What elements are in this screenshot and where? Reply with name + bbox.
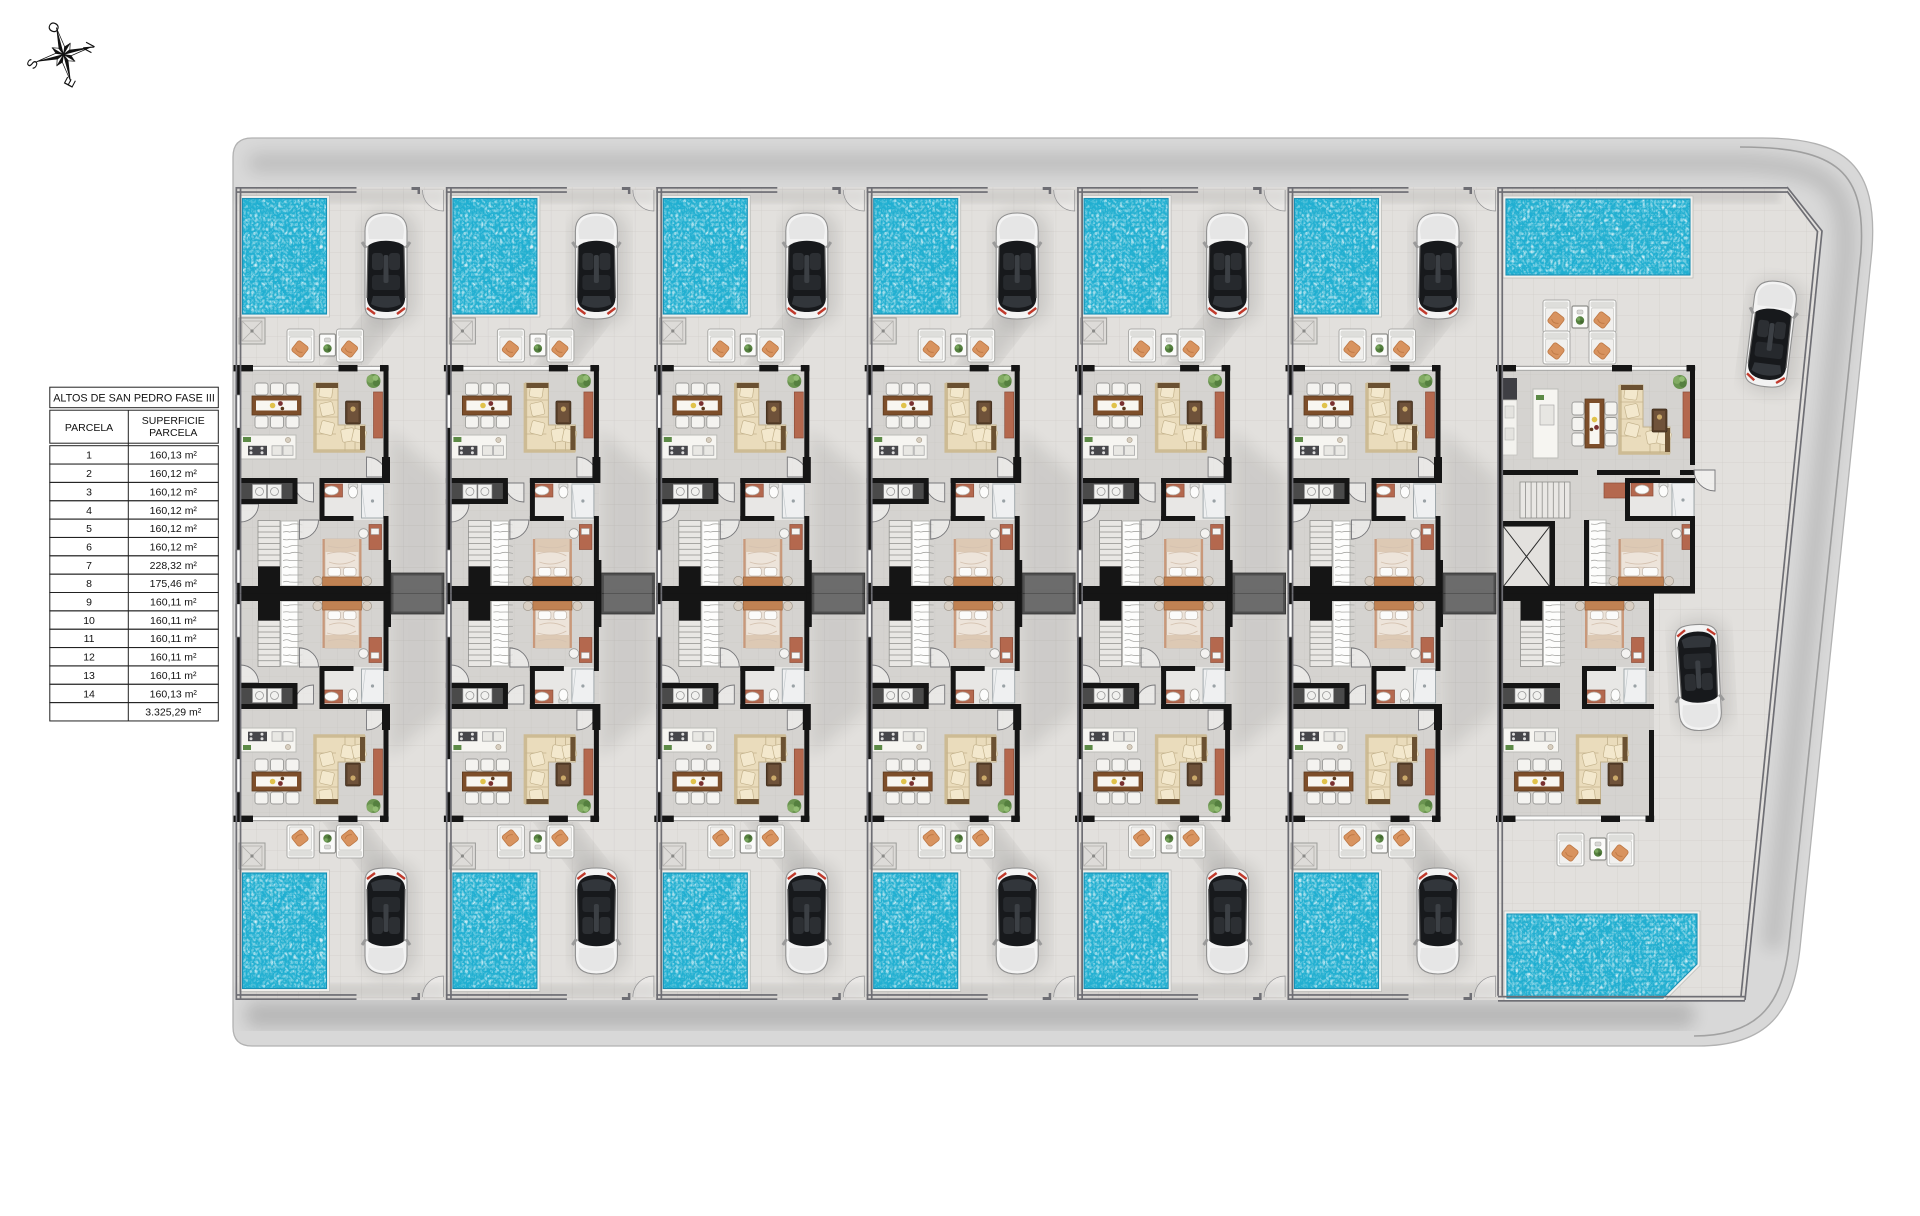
svg-text:ALTOS DE SAN PEDRO FASE III: ALTOS DE SAN PEDRO FASE III	[53, 393, 215, 405]
svg-text:160,11 m²: 160,11 m²	[150, 597, 197, 609]
svg-text:11: 11	[84, 633, 95, 645]
svg-text:3.325,29 m²: 3.325,29 m²	[145, 707, 202, 719]
svg-text:PARCELA: PARCELA	[149, 427, 197, 439]
svg-text:5: 5	[86, 523, 92, 535]
svg-text:160,13 m²: 160,13 m²	[150, 688, 198, 700]
svg-text:175,46 m²: 175,46 m²	[150, 578, 198, 590]
svg-text:2: 2	[86, 468, 92, 480]
svg-text:13: 13	[83, 670, 95, 682]
svg-text:160,11 m²: 160,11 m²	[150, 633, 197, 645]
svg-text:228,32 m²: 228,32 m²	[150, 560, 198, 572]
svg-text:160,11 m²: 160,11 m²	[150, 670, 197, 682]
svg-text:4: 4	[86, 505, 92, 517]
svg-text:160,12 m²: 160,12 m²	[150, 541, 198, 553]
svg-text:160,12 m²: 160,12 m²	[150, 486, 198, 498]
svg-text:160,12 m²: 160,12 m²	[150, 468, 198, 480]
svg-text:160,13 m²: 160,13 m²	[150, 450, 198, 462]
svg-text:160,11 m²: 160,11 m²	[150, 615, 197, 627]
svg-text:8: 8	[86, 578, 92, 590]
svg-text:14: 14	[83, 688, 95, 700]
svg-text:160,12 m²: 160,12 m²	[150, 505, 198, 517]
svg-text:160,12 m²: 160,12 m²	[150, 523, 198, 535]
svg-text:6: 6	[86, 541, 92, 553]
svg-text:7: 7	[86, 560, 92, 572]
svg-text:9: 9	[86, 597, 92, 609]
svg-text:1: 1	[86, 450, 92, 462]
svg-text:10: 10	[83, 615, 95, 627]
svg-text:PARCELA: PARCELA	[65, 422, 113, 434]
svg-text:3: 3	[86, 486, 92, 498]
svg-text:12: 12	[83, 652, 95, 664]
svg-text:160,11 m²: 160,11 m²	[150, 652, 197, 664]
svg-text:SUPERFICIE: SUPERFICIE	[142, 415, 205, 427]
